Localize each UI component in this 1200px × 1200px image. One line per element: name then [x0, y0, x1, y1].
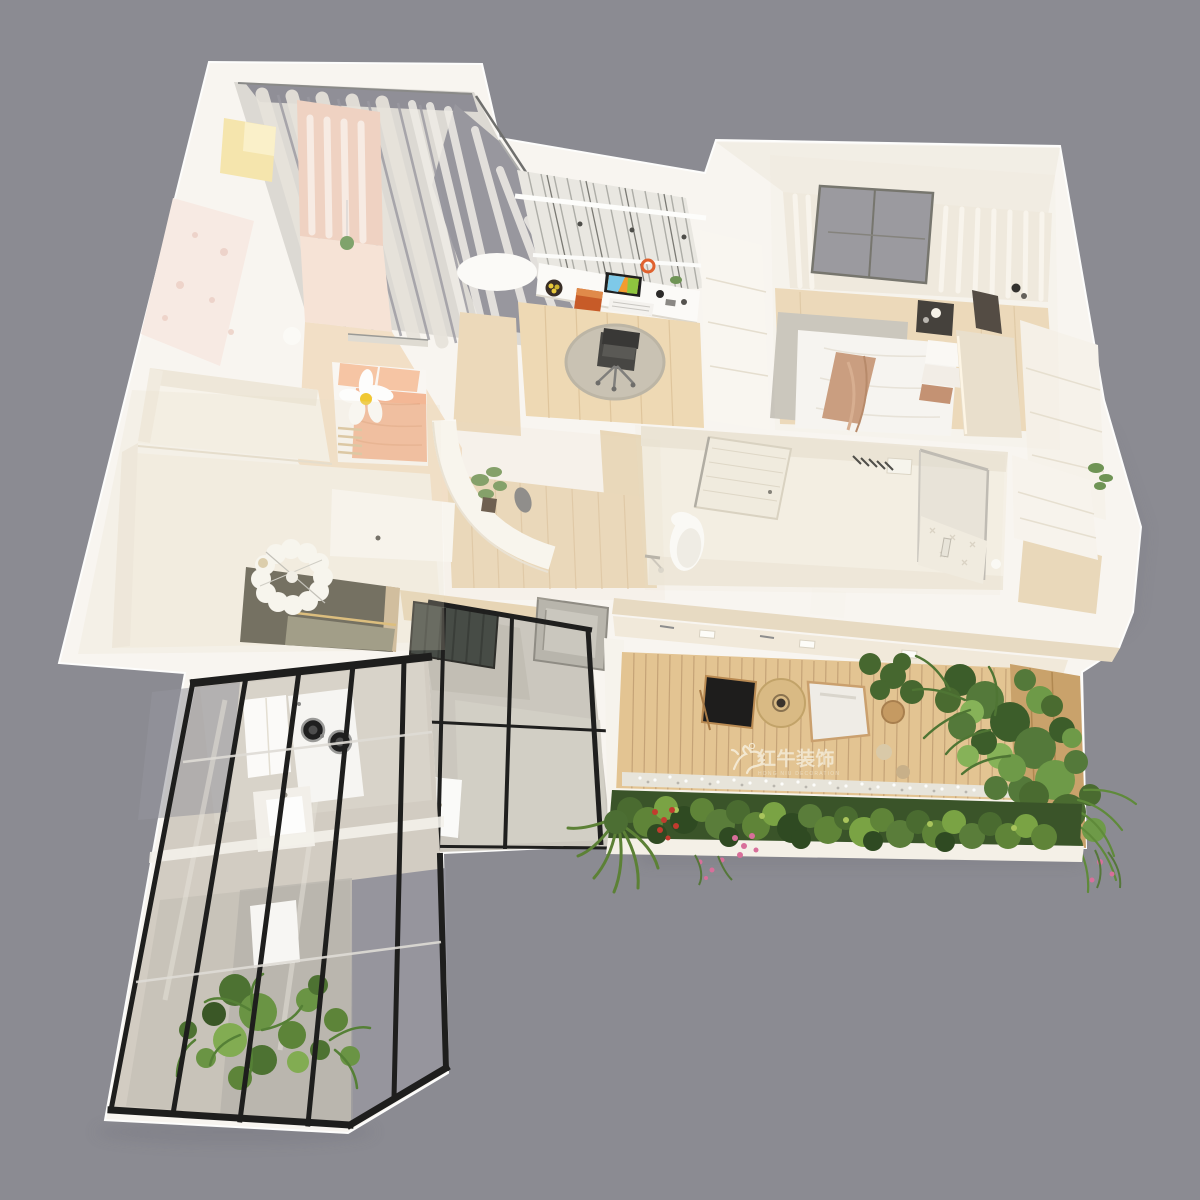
- svg-text:红牛装饰: 红牛装饰: [757, 747, 835, 770]
- svg-text:HONG NIU DECORATION: HONG NIU DECORATION: [758, 771, 840, 777]
